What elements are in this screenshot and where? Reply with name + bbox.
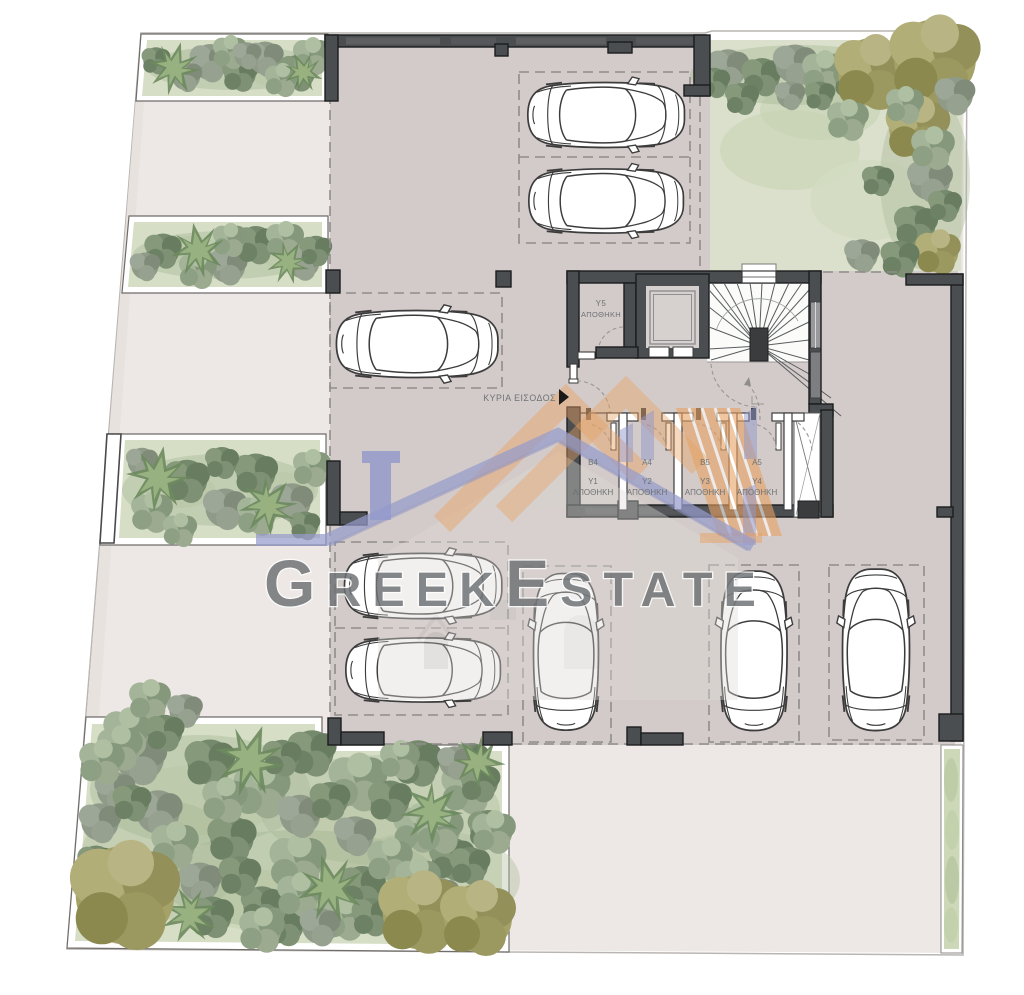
svg-text:Β4: Β4	[588, 458, 598, 467]
svg-text:ΑΠΟΘΗΚΗ: ΑΠΟΘΗΚΗ	[737, 488, 778, 497]
svg-text:Υ4: Υ4	[752, 477, 762, 486]
svg-text:ΑΠΟΘΗΚΗ: ΑΠΟΘΗΚΗ	[627, 488, 668, 497]
svg-text:ΑΠΟΘΗΚΗ: ΑΠΟΘΗΚΗ	[685, 488, 726, 497]
svg-text:ΑΠΟΘΗΚΗ: ΑΠΟΘΗΚΗ	[581, 310, 621, 319]
svg-text:ΑΠΟΘΗΚΗ: ΑΠΟΘΗΚΗ	[573, 488, 614, 497]
svg-text:Υ2: Υ2	[642, 477, 652, 486]
svg-text:Β5: Β5	[700, 458, 710, 467]
svg-text:ΚΥΡΙΑ ΕΙΣΟΔΟΣ: ΚΥΡΙΑ ΕΙΣΟΔΟΣ	[483, 393, 556, 403]
svg-text:Α5: Α5	[752, 458, 762, 467]
svg-text:Υ5: Υ5	[596, 299, 607, 308]
svg-text:Υ3: Υ3	[700, 477, 710, 486]
svg-text:Α4: Α4	[642, 458, 652, 467]
svg-text:Υ1: Υ1	[588, 477, 598, 486]
